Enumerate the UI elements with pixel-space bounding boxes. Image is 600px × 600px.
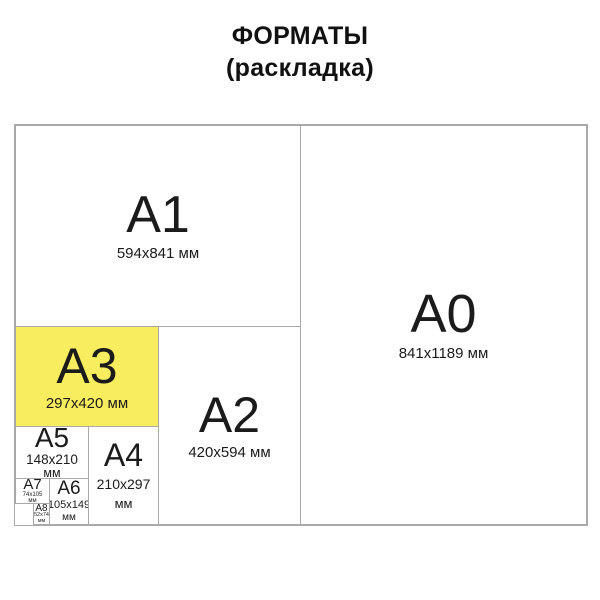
format-label-a0: A0 xyxy=(410,288,476,341)
panel-a0: A0 841x1189 мм xyxy=(300,125,587,525)
panel-a6: A6 105x149 мм xyxy=(49,478,89,525)
format-dims-a4: 210x297 xyxy=(97,476,151,492)
format-dims-a6: 105x149 xyxy=(49,499,89,511)
panel-a3-highlighted: A3 297x420 мм xyxy=(15,326,159,427)
panel-a7: A7 74x105 мм xyxy=(15,478,50,504)
format-unit-a4: мм xyxy=(115,496,133,511)
figure-title-line2: (раскладка) xyxy=(0,52,600,84)
format-label-a3: A3 xyxy=(56,342,117,391)
format-unit-a8: мм xyxy=(38,519,46,525)
format-dims-a1: 594x841 мм xyxy=(117,245,199,262)
format-unit-a6: мм xyxy=(62,512,76,523)
format-label-a7: A7 xyxy=(23,478,41,492)
panel-a5: A5 148x210 мм xyxy=(15,426,89,479)
format-dims-a5: 148x210 xyxy=(26,452,78,467)
panel-a2: A2 420x594 мм xyxy=(158,326,301,525)
paper-formats-figure: { "title": { "line1": "ФОРМАТЫ", "line2"… xyxy=(0,0,600,600)
panel-a4: A4 210x297 мм xyxy=(88,426,159,525)
format-label-a4: A4 xyxy=(104,440,143,471)
formats-layout-diagram: A1 594x841 мм A0 841x1189 мм A3 297x420 … xyxy=(14,124,588,526)
format-label-a5: A5 xyxy=(35,426,69,451)
figure-title-line1: ФОРМАТЫ xyxy=(0,20,600,52)
figure-title: ФОРМАТЫ (раскладка) xyxy=(0,20,600,84)
format-label-a2: A2 xyxy=(199,391,260,440)
format-dims-a2: 420x594 мм xyxy=(188,444,270,461)
format-label-a6: A6 xyxy=(57,480,80,499)
panel-a8: A8 52x74 мм xyxy=(33,503,50,525)
format-label-a1: A1 xyxy=(126,190,190,241)
format-dims-a0: 841x1189 мм xyxy=(399,345,489,362)
panel-a1: A1 594x841 мм xyxy=(15,125,301,327)
format-dims-a3: 297x420 мм xyxy=(46,395,128,412)
